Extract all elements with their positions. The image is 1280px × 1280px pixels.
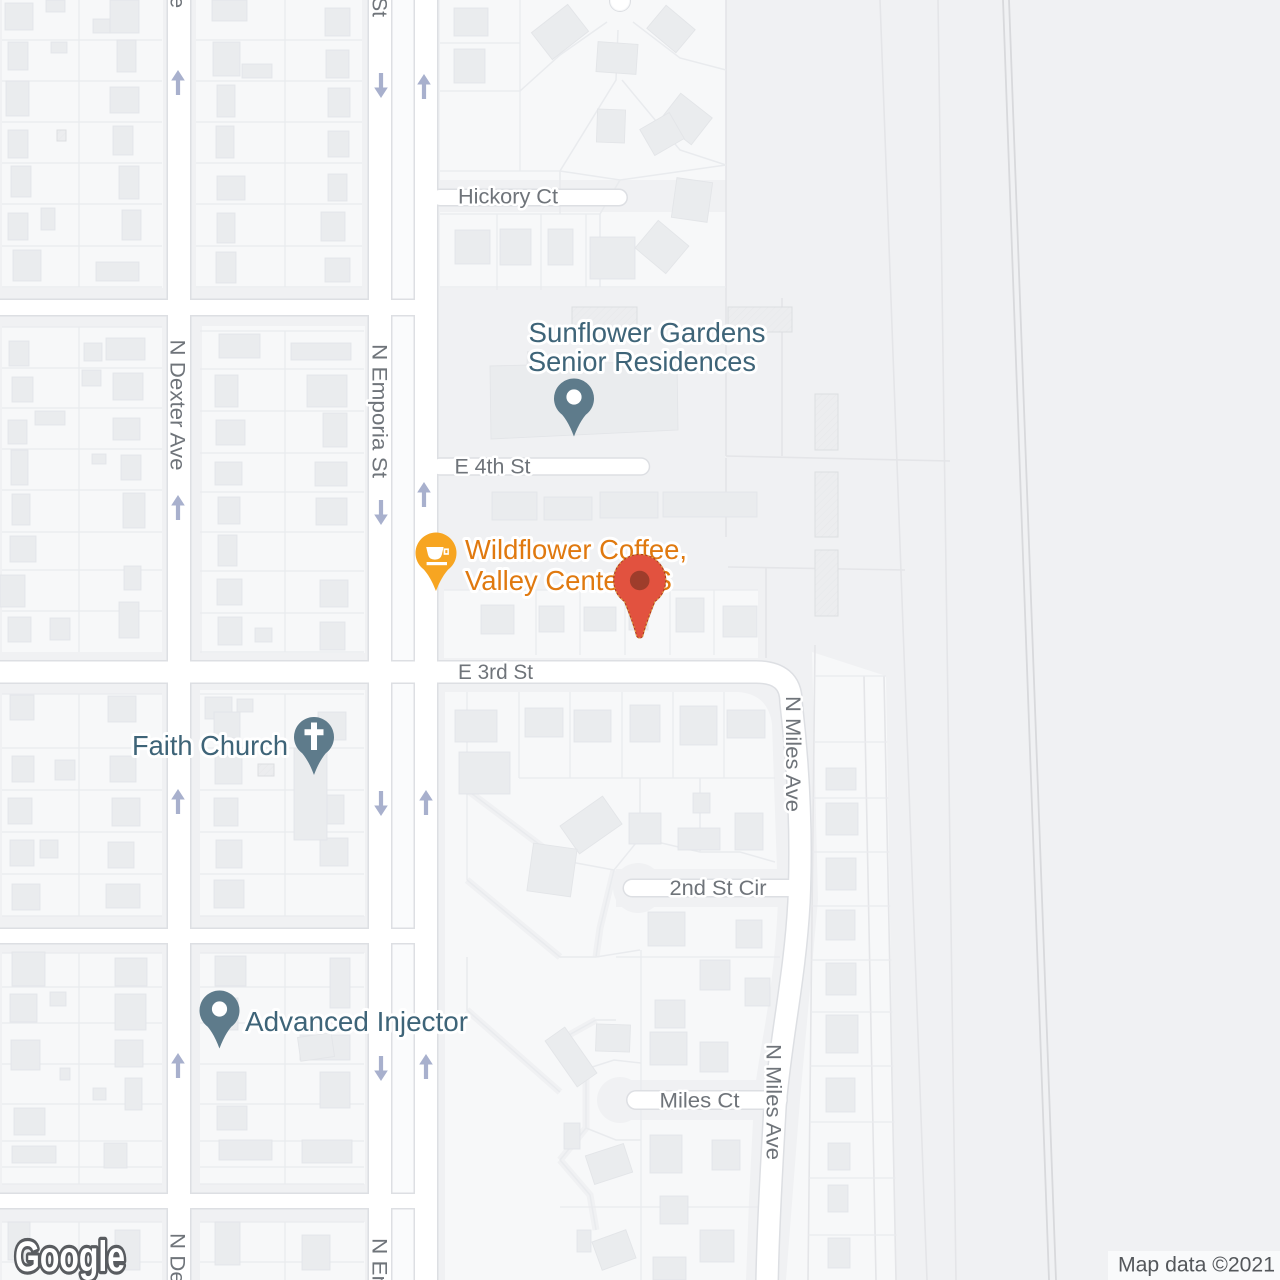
svg-text:N Dexter Ave: N Dexter Ave <box>166 340 189 471</box>
svg-text:N Emporia St: N Emporia St <box>368 1238 391 1280</box>
svg-text:Google: Google <box>15 1233 125 1280</box>
svg-text:e: e <box>166 0 189 8</box>
svg-text:Senior Residences: Senior Residences <box>528 346 756 377</box>
svg-text:Map data ©2021: Map data ©2021 <box>1118 1254 1275 1277</box>
svg-text:N Miles Ave: N Miles Ave <box>781 696 804 812</box>
svg-text:Advanced Injector: Advanced Injector <box>245 1006 468 1037</box>
svg-text:2nd St Cir: 2nd St Cir <box>670 877 767 900</box>
svg-text:N Dexter Ave: N Dexter Ave <box>166 1233 189 1280</box>
svg-text:E 4th St: E 4th St <box>455 456 531 479</box>
svg-text:N Emporia St: N Emporia St <box>368 344 391 478</box>
svg-text:Miles Ct: Miles Ct <box>660 1090 740 1113</box>
svg-text:St: St <box>368 0 391 17</box>
svg-text:E 3rd St: E 3rd St <box>458 661 533 684</box>
svg-text:Faith Church: Faith Church <box>132 730 288 761</box>
svg-text:Sunflower Gardens: Sunflower Gardens <box>529 317 766 348</box>
svg-text:Hickory Ct: Hickory Ct <box>458 186 558 209</box>
svg-text:N Miles Ave: N Miles Ave <box>762 1044 785 1160</box>
